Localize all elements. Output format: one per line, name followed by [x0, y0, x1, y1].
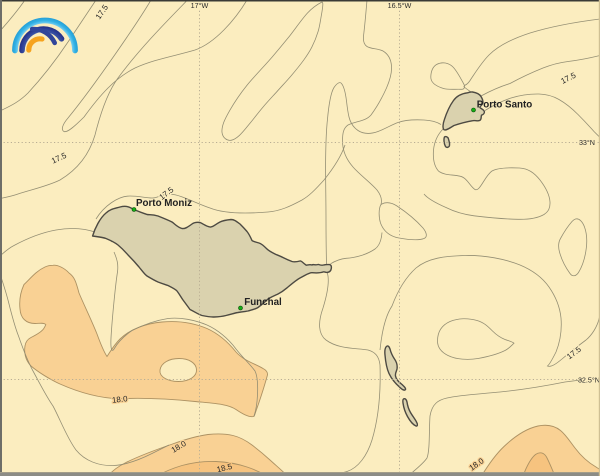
svg-text:16.5°W: 16.5°W — [388, 1, 412, 10]
svg-text:32.5°N: 32.5°N — [578, 376, 600, 385]
svg-text:Porto Santo: Porto Santo — [477, 100, 533, 111]
svg-text:33°N: 33°N — [579, 138, 595, 147]
svg-text:Porto Moniz: Porto Moniz — [136, 198, 192, 209]
svg-text:18.0: 18.0 — [112, 394, 129, 405]
svg-text:17°W: 17°W — [191, 1, 209, 10]
svg-text:Funchal: Funchal — [244, 297, 282, 308]
